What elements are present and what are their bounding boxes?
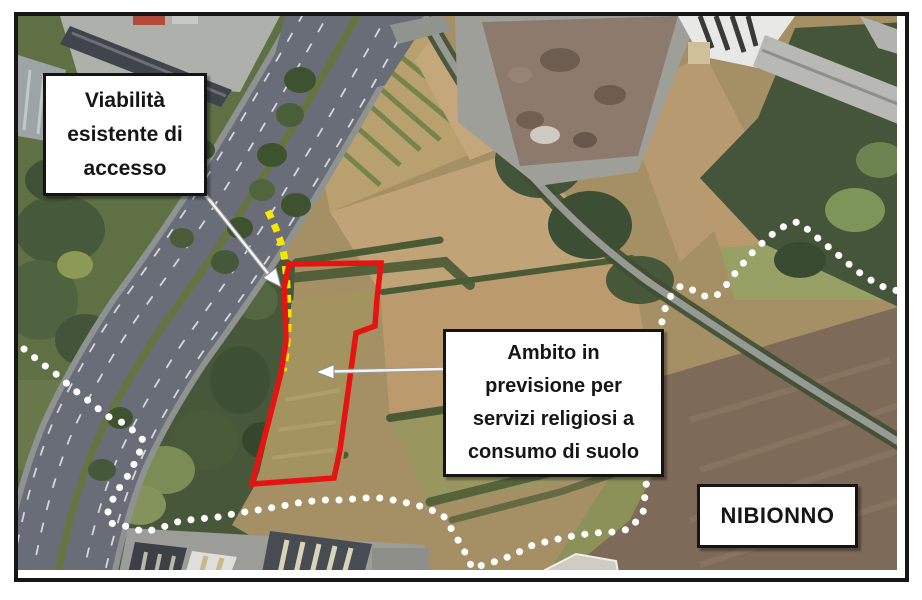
municipality-name: NIBIONNO	[721, 503, 835, 529]
ambito-callout-line: previsione per	[485, 370, 622, 403]
viability-callout-line: Viabilità	[85, 84, 165, 118]
viability-callout-line: esistente di	[67, 118, 183, 152]
ambito-callout-line: servizi religiosi a	[473, 403, 634, 436]
ambito-callout-line: consumo di suolo	[468, 436, 639, 469]
aerial-map-figure: Google Viabilità esistente di accesso Am…	[0, 0, 922, 600]
municipality-label: NIBIONNO	[697, 484, 858, 548]
viability-callout-line: accesso	[84, 152, 167, 186]
viability-callout: Viabilità esistente di accesso	[43, 73, 207, 196]
ambito-callout: Ambito in previsione per servizi religio…	[443, 329, 664, 477]
ambito-callout-line: Ambito in	[507, 337, 599, 370]
map-watermark: Google	[418, 569, 460, 584]
